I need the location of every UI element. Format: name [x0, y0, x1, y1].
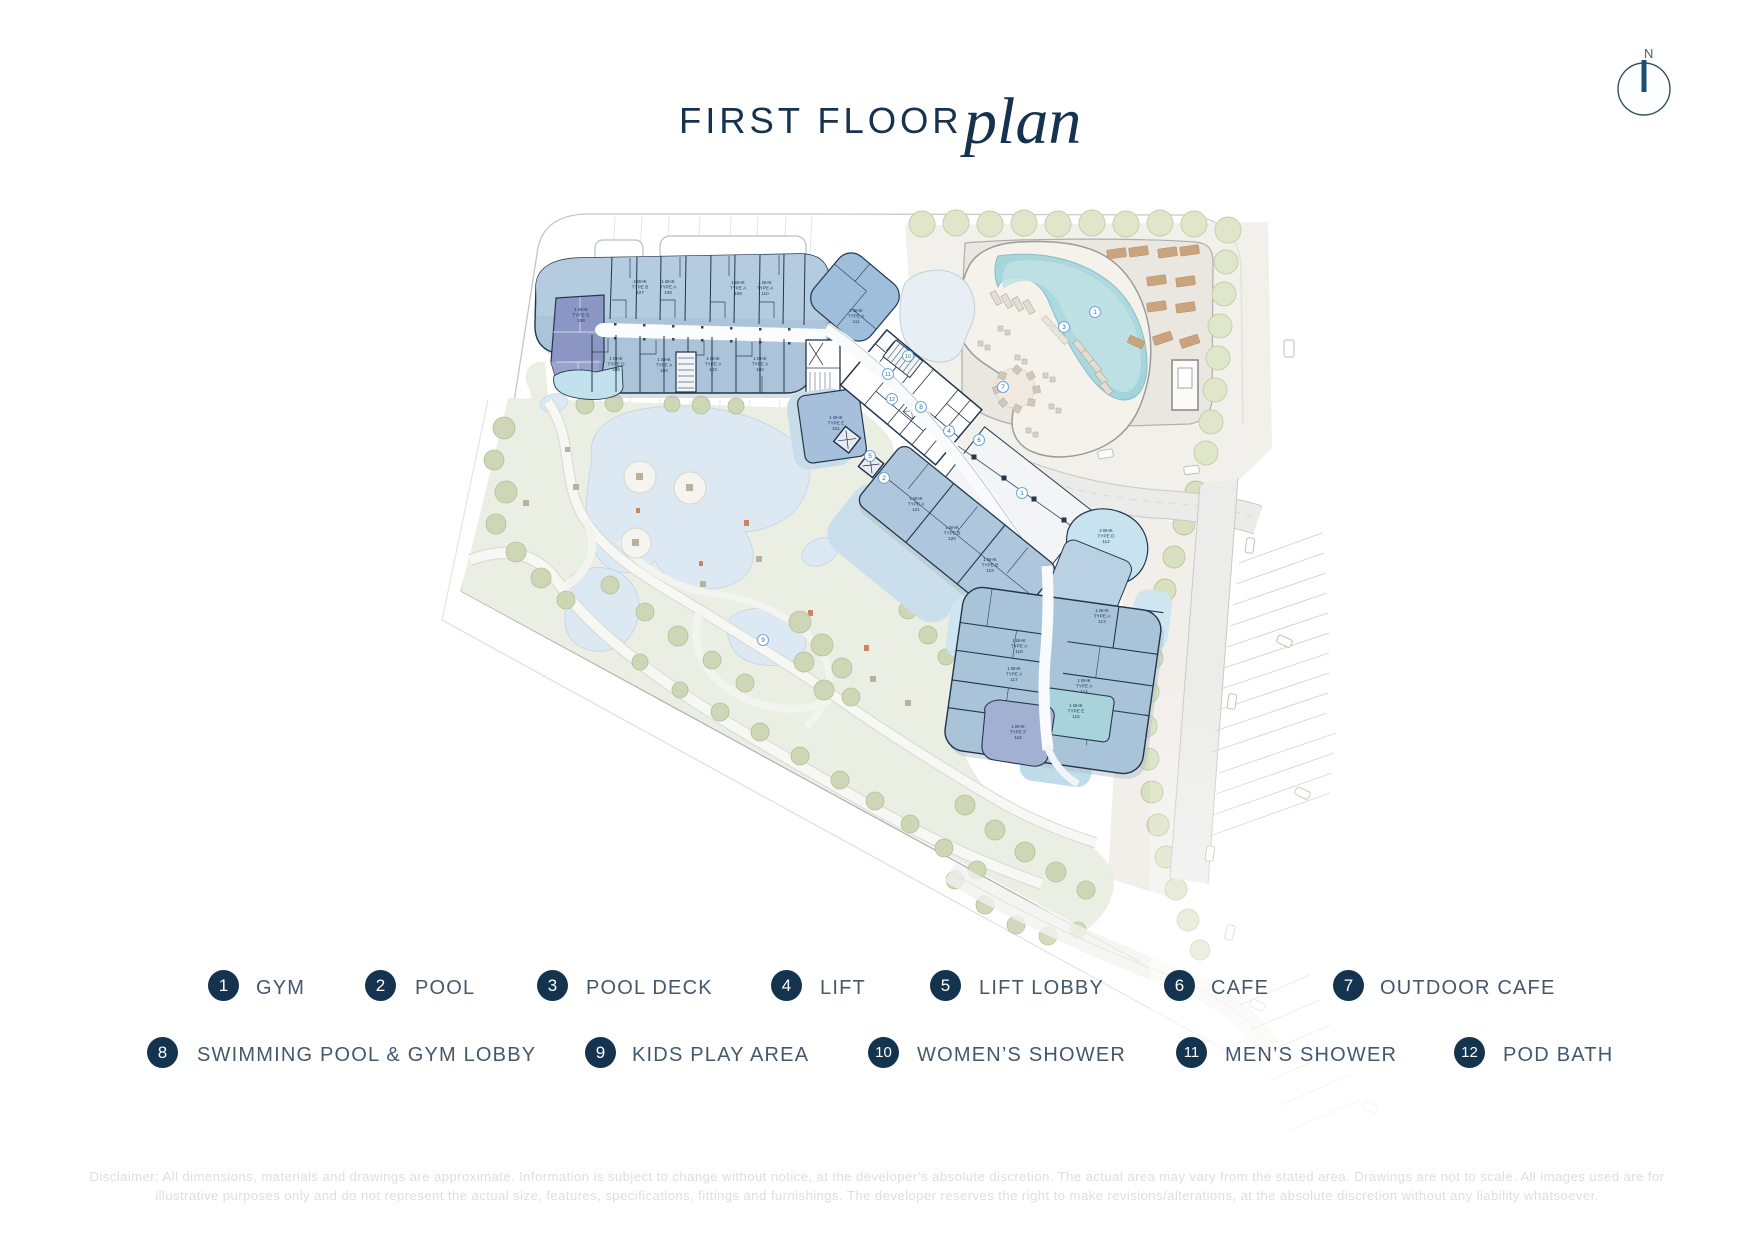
- svg-text:2: 2: [882, 475, 886, 482]
- svg-text:11: 11: [885, 372, 891, 378]
- svg-text:10: 10: [905, 354, 911, 360]
- svg-text:8: 8: [919, 404, 923, 411]
- svg-text:4: 4: [947, 428, 951, 435]
- svg-text:12: 12: [889, 397, 895, 403]
- svg-text:7: 7: [1001, 384, 1005, 391]
- svg-text:1: 1: [1093, 309, 1097, 316]
- svg-text:6: 6: [977, 437, 981, 444]
- svg-text:5: 5: [868, 453, 872, 460]
- svg-text:1: 1: [1020, 490, 1024, 497]
- svg-text:3: 3: [1062, 324, 1066, 331]
- svg-text:9: 9: [761, 637, 765, 644]
